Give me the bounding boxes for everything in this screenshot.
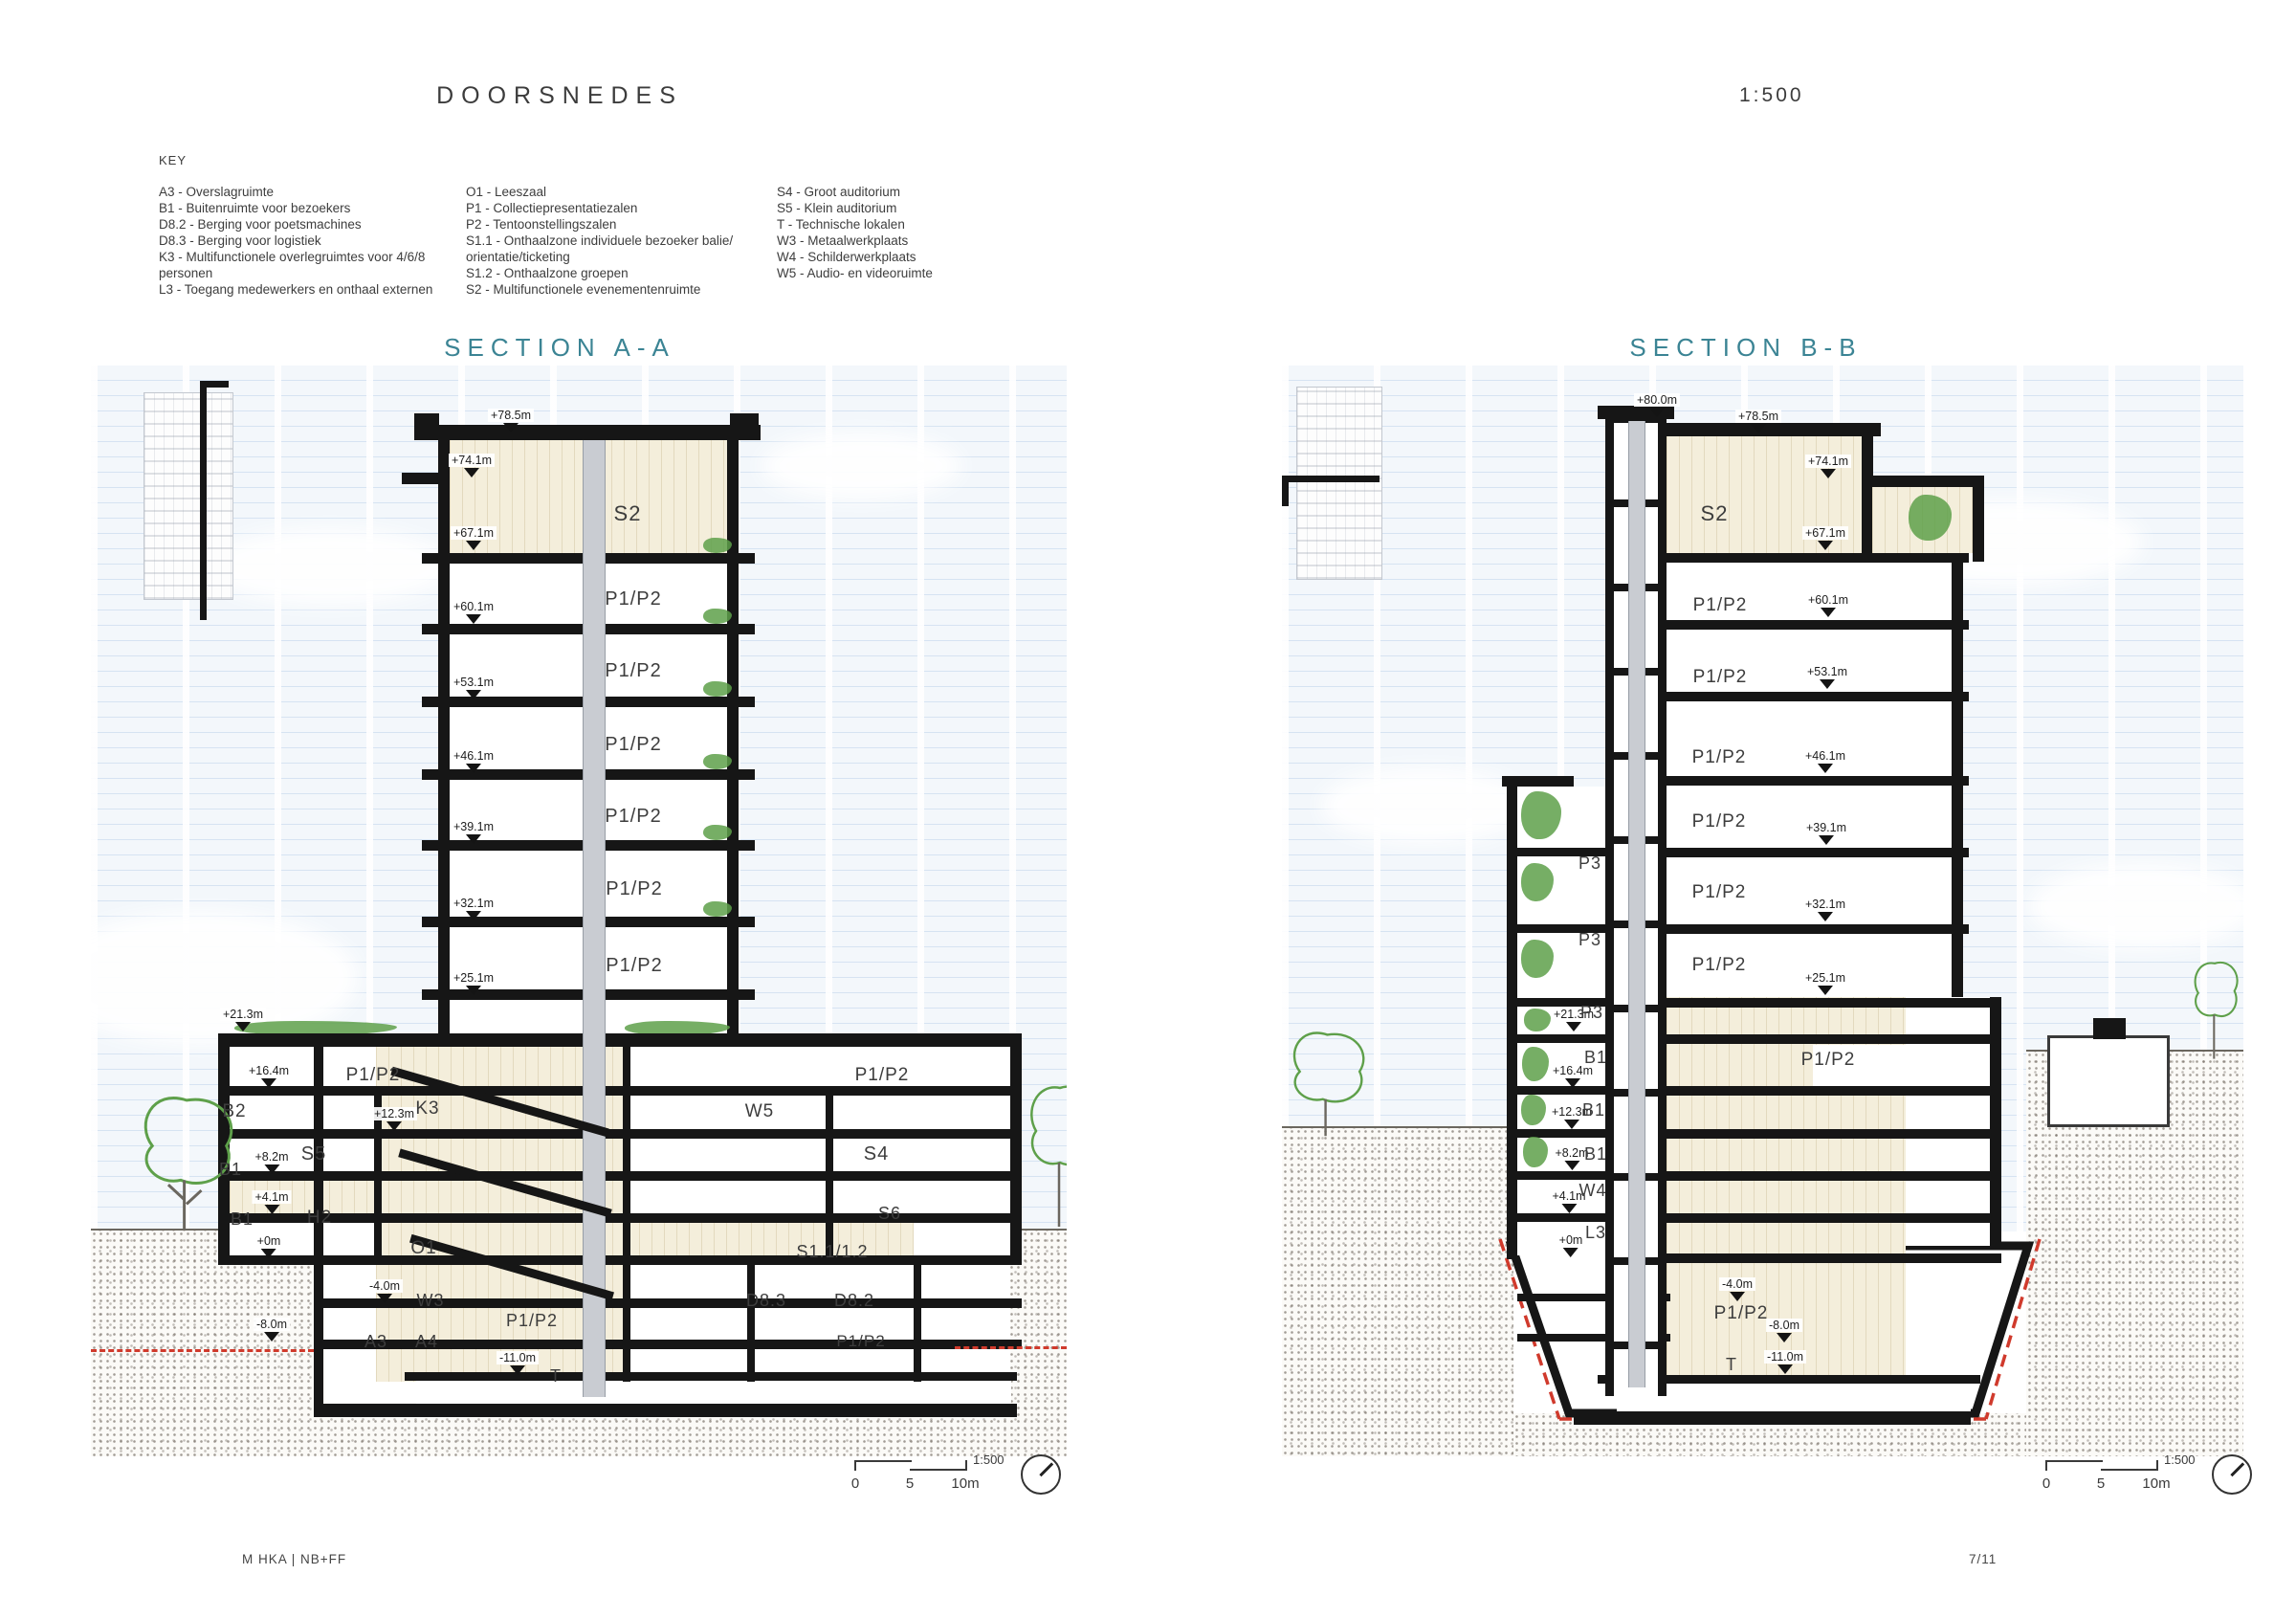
level-triangle-icon xyxy=(1564,1120,1579,1129)
section-b-drawing: +80.0m+78.5m+74.1m+67.1m+60.1m+53.1m+46.… xyxy=(1282,366,2243,1456)
level-triangle-icon xyxy=(466,614,481,624)
level-triangle-icon xyxy=(464,468,479,477)
level-marker: +25.1m xyxy=(1802,971,1848,995)
room-label: B1 xyxy=(1582,1100,1605,1120)
section-a-drawing: +78.5m+74.1m+67.1m+60.1m+53.1m+46.1m+39.… xyxy=(91,366,1067,1456)
room-label: P1/P2 xyxy=(1692,747,1747,768)
level-label: +16.4m xyxy=(246,1064,292,1077)
room-label: P1/P2 xyxy=(1692,955,1747,976)
key-item: L3 - Toegang medewerkers en onthaal exte… xyxy=(159,281,460,298)
room-label: P1/P2 xyxy=(606,955,662,977)
footer-page-number: 7/11 xyxy=(1969,1552,1997,1566)
level-triangle-icon xyxy=(261,1078,276,1088)
level-label: -11.0m xyxy=(497,1351,539,1364)
room-label: P1/P2 xyxy=(605,806,661,828)
level-label: +32.1m xyxy=(451,897,497,910)
level-marker: +53.1m xyxy=(1804,665,1850,689)
level-triangle-icon xyxy=(1565,1078,1580,1088)
level-label: +53.1m xyxy=(451,676,497,689)
level-marker: -4.0m xyxy=(366,1279,403,1303)
room-label: O1 xyxy=(410,1238,436,1259)
key-item: O1 - Leeszaal xyxy=(466,184,753,200)
key-item: S1.2 - Onthaalzone groepen xyxy=(466,265,753,281)
room-label: P1/P2 xyxy=(855,1065,910,1086)
scale-tick: 10m xyxy=(951,1475,979,1492)
room-label: S4 xyxy=(864,1143,889,1165)
level-label: +78.5m xyxy=(1735,410,1781,423)
level-triangle-icon xyxy=(1818,986,1833,995)
room-label: P3 xyxy=(1578,854,1601,874)
room-label: P3 xyxy=(1580,1003,1603,1023)
level-marker: +12.3m xyxy=(371,1107,417,1131)
room-label: B1 xyxy=(219,1160,242,1180)
level-marker: +8.2m xyxy=(252,1150,291,1174)
scale-ratio: 1:500 xyxy=(973,1453,1004,1467)
level-label: +67.1m xyxy=(1802,526,1848,540)
level-marker: +60.1m xyxy=(1805,593,1851,617)
level-marker: -8.0m xyxy=(1766,1319,1802,1342)
scale-tick: 0 xyxy=(851,1475,859,1492)
scale-bar-segment xyxy=(2101,1460,2158,1471)
level-label: +80.0m xyxy=(1634,393,1680,407)
level-triangle-icon xyxy=(1564,1161,1579,1170)
level-triangle-icon xyxy=(1566,1022,1581,1031)
level-marker: +16.4m xyxy=(246,1064,292,1088)
level-triangle-icon xyxy=(1777,1364,1793,1374)
room-label: W5 xyxy=(745,1101,775,1122)
room-label: T xyxy=(550,1366,562,1386)
level-label: +53.1m xyxy=(1804,665,1850,678)
room-label: P1/P2 xyxy=(605,734,661,756)
room-label: P1/P2 xyxy=(1801,1050,1856,1071)
scale-tick: 0 xyxy=(2042,1475,2050,1492)
level-triangle-icon xyxy=(1821,469,1836,478)
room-label: L3 xyxy=(1585,1223,1606,1243)
level-triangle-icon xyxy=(1818,541,1833,550)
room-label: T xyxy=(1726,1355,1737,1375)
scale-bar-a: 1:500 0 5 10m xyxy=(847,1447,1076,1506)
level-triangle-icon xyxy=(503,423,519,432)
level-label: +78.5m xyxy=(488,409,534,422)
room-label: P1/P2 xyxy=(1693,667,1748,688)
key-column: O1 - LeeszaalP1 - Collectiepresentatieza… xyxy=(466,184,753,298)
level-triangle-icon xyxy=(1820,679,1835,689)
level-label: +0m xyxy=(1556,1233,1586,1247)
level-triangle-icon xyxy=(1777,1333,1792,1342)
level-triangle-icon xyxy=(1751,424,1766,433)
key-item: W4 - Schilderwerkplaats xyxy=(777,249,1035,265)
scale-bar-segment xyxy=(910,1460,967,1471)
scale-tick: 10m xyxy=(2142,1475,2170,1492)
level-marker: +0m xyxy=(254,1234,284,1258)
level-triangle-icon xyxy=(1730,1292,1745,1301)
level-marker: +39.1m xyxy=(1803,821,1849,845)
level-label: +39.1m xyxy=(1803,821,1849,834)
key-item: D8.3 - Berging voor logistiek xyxy=(159,233,460,249)
section-a-title: SECTION A-A xyxy=(397,333,722,363)
key-item: W5 - Audio- en videoruimte xyxy=(777,265,1035,281)
room-label: S1.1/1.2 xyxy=(796,1242,868,1262)
room-label: A4 xyxy=(415,1332,438,1352)
room-label: S6 xyxy=(878,1204,901,1224)
footer-project-code: M HKA | NB+FF xyxy=(242,1552,346,1566)
scale-tick: 5 xyxy=(906,1475,914,1492)
room-label: P1/P2 xyxy=(1692,882,1747,903)
level-label: +32.1m xyxy=(1802,898,1848,911)
page-scale-label: 1:500 xyxy=(1739,84,1804,107)
level-triangle-icon xyxy=(466,690,481,699)
level-triangle-icon xyxy=(466,986,481,995)
room-label: P1/P2 xyxy=(605,588,661,610)
level-marker: +80.0m xyxy=(1634,393,1680,417)
annotations-a: +78.5m+74.1m+67.1m+60.1m+53.1m+46.1m+39.… xyxy=(91,366,1067,1456)
level-triangle-icon xyxy=(386,1121,402,1131)
level-triangle-icon xyxy=(510,1365,525,1375)
room-label: B1 xyxy=(1584,1048,1607,1068)
page-title: DOORSNEDES xyxy=(397,82,722,110)
level-triangle-icon xyxy=(1818,912,1833,921)
level-marker: +74.1m xyxy=(1805,455,1851,478)
level-marker: -4.0m xyxy=(1719,1277,1755,1301)
level-triangle-icon xyxy=(1821,608,1836,617)
level-triangle-icon xyxy=(1563,1248,1578,1257)
north-compass-icon xyxy=(1021,1454,1061,1495)
level-marker: +4.1m xyxy=(252,1190,291,1214)
level-label: +4.1m xyxy=(252,1190,291,1204)
level-triangle-icon xyxy=(466,834,481,844)
level-triangle-icon xyxy=(264,1164,279,1174)
room-label: P1/P2 xyxy=(506,1311,558,1331)
level-triangle-icon xyxy=(466,764,481,773)
level-marker: +67.1m xyxy=(1802,526,1848,550)
key-item: S4 - Groot auditorium xyxy=(777,184,1035,200)
level-marker: +21.3m xyxy=(220,1008,266,1031)
level-label: -8.0m xyxy=(254,1318,290,1331)
room-label: B1 xyxy=(1584,1144,1607,1164)
level-marker: +0m xyxy=(1556,1233,1586,1257)
level-label: +60.1m xyxy=(451,600,497,613)
scale-bar-segment xyxy=(854,1460,912,1471)
room-label: B1 xyxy=(231,1209,254,1230)
level-label: -4.0m xyxy=(366,1279,403,1293)
room-label: P1/P2 xyxy=(606,878,662,900)
room-label: D8.2 xyxy=(834,1291,874,1311)
level-label: +12.3m xyxy=(371,1107,417,1120)
room-label: P1/P2 xyxy=(836,1332,885,1351)
level-label: +0m xyxy=(254,1234,284,1248)
level-triangle-icon xyxy=(377,1294,392,1303)
level-triangle-icon xyxy=(264,1205,279,1214)
level-marker: -11.0m xyxy=(497,1351,539,1375)
level-marker: -8.0m xyxy=(254,1318,290,1342)
room-label: S2 xyxy=(1701,501,1729,526)
level-label: -4.0m xyxy=(1719,1277,1755,1291)
level-label: +74.1m xyxy=(449,454,495,467)
room-label: P3 xyxy=(1578,930,1601,950)
key-item: A3 - Overslagruimte xyxy=(159,184,460,200)
key-item: T - Technische lokalen xyxy=(777,216,1035,233)
room-label: S2 xyxy=(614,501,642,526)
level-triangle-icon xyxy=(235,1022,251,1031)
level-label: +21.3m xyxy=(220,1008,266,1021)
level-label: -11.0m xyxy=(1764,1350,1806,1364)
room-label: B2 xyxy=(222,1101,246,1122)
room-label: W4 xyxy=(1579,1181,1607,1201)
level-label: +46.1m xyxy=(1802,749,1848,763)
level-label: +60.1m xyxy=(1805,593,1851,607)
room-label: P1/P2 xyxy=(1714,1303,1769,1324)
room-label: P1/P2 xyxy=(1692,811,1747,832)
level-marker: +67.1m xyxy=(451,526,497,550)
level-marker: +78.5m xyxy=(1735,410,1781,433)
level-marker: +46.1m xyxy=(1802,749,1848,773)
level-label: +25.1m xyxy=(451,971,497,985)
room-label: P1/P2 xyxy=(1693,595,1748,616)
level-marker: +53.1m xyxy=(451,676,497,699)
level-triangle-icon xyxy=(261,1249,276,1258)
annotations-b: +80.0m+78.5m+74.1m+67.1m+60.1m+53.1m+46.… xyxy=(1282,366,2243,1456)
level-triangle-icon xyxy=(466,911,481,920)
key-column: A3 - OverslagruimteB1 - Buitenruimte voo… xyxy=(159,184,460,298)
level-marker: -11.0m xyxy=(1764,1350,1806,1374)
level-marker: +78.5m xyxy=(488,409,534,432)
level-marker: +39.1m xyxy=(451,820,497,844)
key-item: B1 - Buitenruimte voor bezoekers xyxy=(159,200,460,216)
level-label: +74.1m xyxy=(1805,455,1851,468)
level-marker: +32.1m xyxy=(451,897,497,920)
section-b-title: SECTION B-B xyxy=(1583,333,1909,363)
level-triangle-icon xyxy=(1818,764,1833,773)
room-label: P1/P2 xyxy=(346,1065,401,1086)
key-item: P2 - Tentoonstellingszalen xyxy=(466,216,753,233)
north-compass-icon xyxy=(2212,1454,2252,1495)
level-label: +25.1m xyxy=(1802,971,1848,985)
key-item: D8.2 - Berging voor poetsmachines xyxy=(159,216,460,233)
level-label: +67.1m xyxy=(451,526,497,540)
key-heading: KEY xyxy=(159,153,187,167)
level-marker: +74.1m xyxy=(449,454,495,477)
level-marker: +25.1m xyxy=(451,971,497,995)
key-item: S1.1 - Onthaalzone individuele bezoeker … xyxy=(466,233,753,265)
room-label: H2 xyxy=(307,1208,332,1229)
level-marker: +32.1m xyxy=(1802,898,1848,921)
key-column: S4 - Groot auditoriumS5 - Klein auditori… xyxy=(777,184,1035,281)
scale-tick: 5 xyxy=(2097,1475,2105,1492)
level-triangle-icon xyxy=(466,541,481,550)
key-item: K3 - Multifunctionele overlegruimtes voo… xyxy=(159,249,460,281)
level-triangle-icon xyxy=(264,1332,279,1342)
level-marker: +46.1m xyxy=(451,749,497,773)
scale-ratio: 1:500 xyxy=(2164,1453,2196,1467)
room-label: K3 xyxy=(415,1098,439,1120)
scale-bar-segment xyxy=(2045,1460,2103,1471)
level-label: +46.1m xyxy=(451,749,497,763)
key-item: P1 - Collectiepresentatiezalen xyxy=(466,200,753,216)
room-label: W3 xyxy=(417,1291,445,1311)
level-label: +39.1m xyxy=(451,820,497,833)
key-item: S2 - Multifunctionele evenementenruimte xyxy=(466,281,753,298)
level-triangle-icon xyxy=(1819,835,1834,845)
key-item: S5 - Klein auditorium xyxy=(777,200,1035,216)
room-label: A3 xyxy=(364,1332,387,1352)
level-triangle-icon xyxy=(1649,408,1665,417)
room-label: D8.3 xyxy=(746,1291,786,1311)
key-item: W3 - Metaalwerkplaats xyxy=(777,233,1035,249)
level-label: -8.0m xyxy=(1766,1319,1802,1332)
room-label: P1/P2 xyxy=(605,660,661,682)
scale-bar-b: 1:500 0 5 10m xyxy=(2038,1447,2267,1506)
room-label: S5 xyxy=(301,1143,326,1165)
level-label: +8.2m xyxy=(252,1150,291,1164)
level-marker: +60.1m xyxy=(451,600,497,624)
level-triangle-icon xyxy=(1561,1204,1577,1213)
